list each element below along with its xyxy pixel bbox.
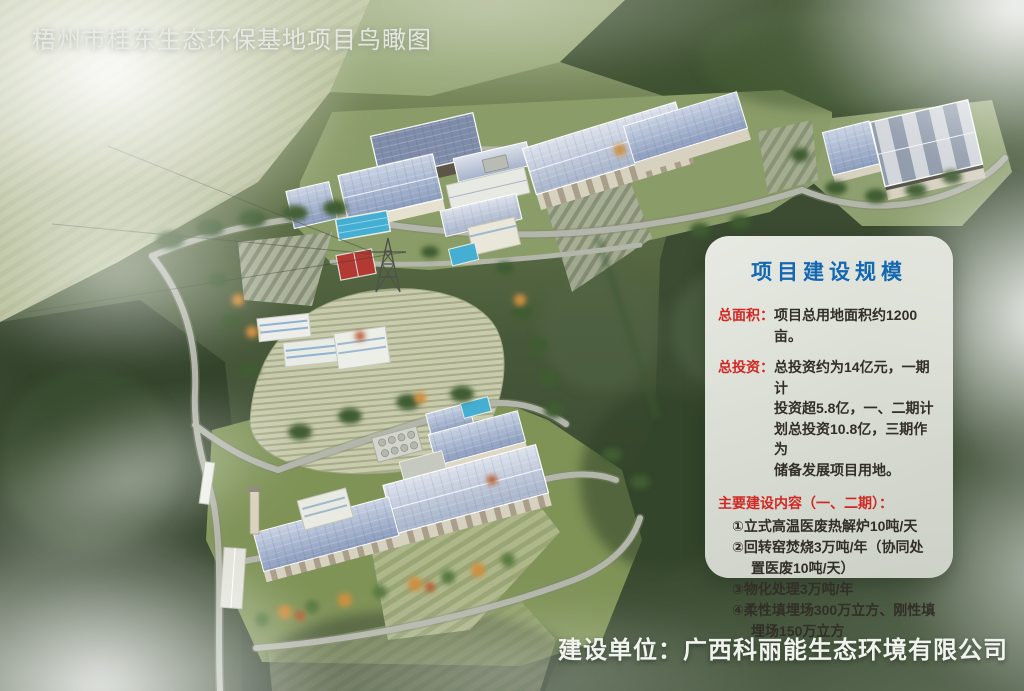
total-area-row: 总面积： 项目总用地面积约1200亩。 [718, 305, 940, 346]
builder-caption: 建设单位：广西科丽能生态环境有限公司 [558, 630, 1008, 665]
main-content-label: 主要建设内容（一、二期）： [718, 493, 940, 513]
total-investment-label: 总投资： [718, 357, 774, 480]
total-area-label: 总面积： [718, 305, 774, 346]
total-area-value: 项目总用地面积约1200亩。 [774, 305, 940, 346]
content-item-2: ②回转窑焚烧3万吨/年（协同处 置医废10吨/天） [718, 537, 940, 579]
content-item-3: ③物化处理3万吨/年 [718, 579, 940, 600]
total-investment-row: 总投资： 总投资约为14亿元，一期计 投资超5.8亿，一、二期计 划总投资10.… [718, 357, 940, 480]
project-scale-panel: 项目建设规模 总面积： 项目总用地面积约1200亩。 总投资： 总投资约为14亿… [705, 236, 953, 578]
page-title: 梧州市桂东生态环保基地项目鸟瞰图 [32, 20, 432, 55]
poster: 梧州市桂东生态环保基地项目鸟瞰图 项目建设规模 总面积： 项目总用地面积约120… [0, 0, 1024, 691]
total-investment-value: 总投资约为14亿元，一期计 投资超5.8亿，一、二期计 划总投资10.8亿，三期… [774, 357, 940, 480]
panel-heading: 项目建设规模 [718, 256, 940, 286]
content-item-1: ①立式高温医废热解炉10吨/天 [718, 516, 940, 537]
